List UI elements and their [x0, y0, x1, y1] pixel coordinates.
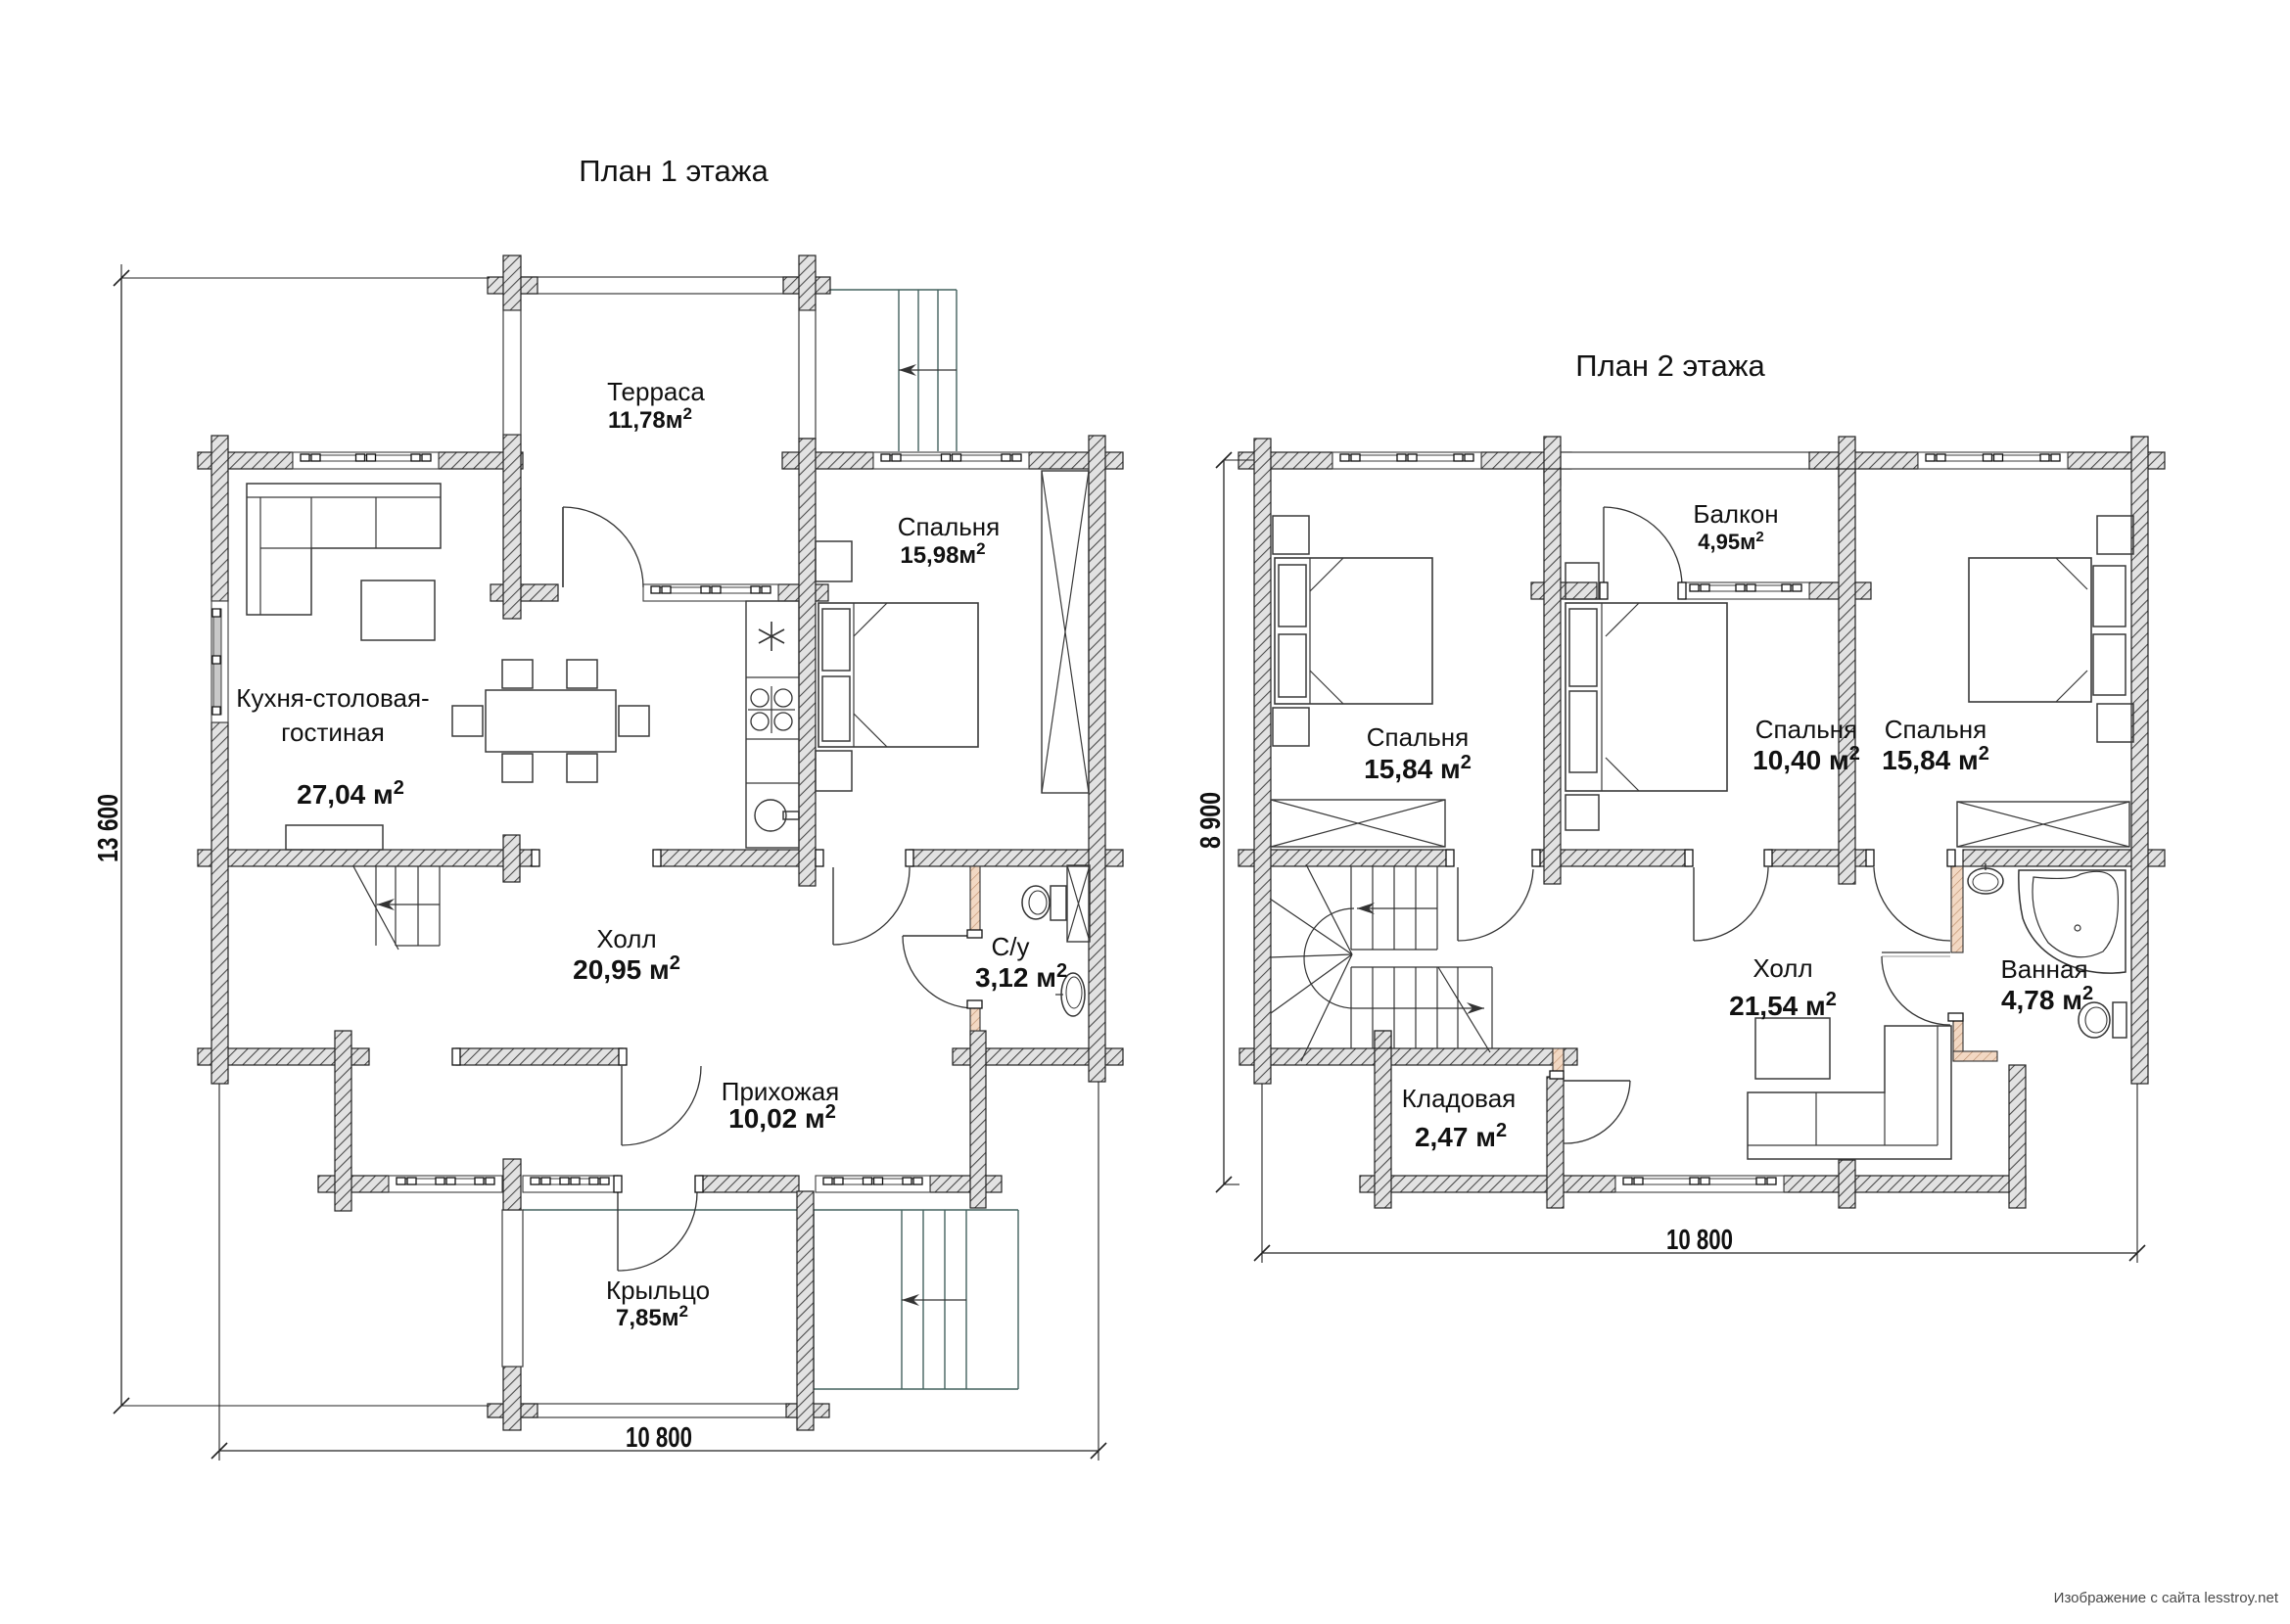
- svg-text:11,78м2: 11,78м2: [608, 404, 692, 434]
- svg-text:Терраса: Терраса: [607, 377, 705, 406]
- svg-text:10,40 м2: 10,40 м2: [1753, 743, 1860, 775]
- svg-text:15,84 м2: 15,84 м2: [1882, 743, 1989, 775]
- svg-text:гостиная: гостиная: [281, 718, 385, 747]
- svg-text:Кухня-столовая-: Кухня-столовая-: [236, 683, 429, 713]
- svg-text:4,78 м2: 4,78 м2: [2001, 983, 2093, 1015]
- svg-text:Холл: Холл: [596, 924, 656, 953]
- svg-text:Ванная: Ванная: [2000, 954, 2087, 984]
- svg-text:С/у: С/у: [992, 932, 1030, 961]
- svg-text:27,04 м2: 27,04 м2: [297, 777, 404, 810]
- svg-text:Спальня: Спальня: [1367, 722, 1469, 752]
- svg-text:10,02 м2: 10,02 м2: [728, 1101, 836, 1134]
- svg-text:15,84 м2: 15,84 м2: [1364, 752, 1472, 784]
- svg-text:Крыльцо: Крыльцо: [606, 1276, 710, 1305]
- svg-text:20,95 м2: 20,95 м2: [573, 952, 680, 985]
- svg-text:Кладовая: Кладовая: [1402, 1084, 1516, 1113]
- svg-text:Прихожая: Прихожая: [722, 1077, 839, 1106]
- svg-text:7,85м2: 7,85м2: [616, 1302, 688, 1331]
- svg-text:План 2 этажа: План 2 этажа: [1575, 348, 1765, 383]
- svg-text:Спальня: Спальня: [1885, 715, 1986, 744]
- svg-text:Изображение с сайта lesstroy.n: Изображение с сайта lesstroy.net: [2054, 1590, 2279, 1606]
- svg-text:План 1 этажа: План 1 этажа: [579, 154, 769, 188]
- svg-text:3,12 м2: 3,12 м2: [975, 960, 1067, 993]
- svg-text:Балкон: Балкон: [1693, 499, 1778, 529]
- svg-text:8 900: 8 900: [1195, 792, 1227, 849]
- svg-text:10 800: 10 800: [626, 1422, 692, 1454]
- svg-text:Холл: Холл: [1753, 953, 1812, 983]
- svg-text:Спальня: Спальня: [898, 512, 1000, 541]
- svg-text:Спальня: Спальня: [1755, 715, 1857, 744]
- svg-text:2,47 м2: 2,47 м2: [1415, 1120, 1507, 1152]
- svg-text:13 600: 13 600: [93, 794, 124, 862]
- svg-text:4,95м2: 4,95м2: [1698, 529, 1763, 554]
- svg-text:15,98м2: 15,98м2: [900, 539, 985, 569]
- svg-text:21,54 м2: 21,54 м2: [1729, 989, 1837, 1021]
- svg-text:10 800: 10 800: [1666, 1225, 1733, 1256]
